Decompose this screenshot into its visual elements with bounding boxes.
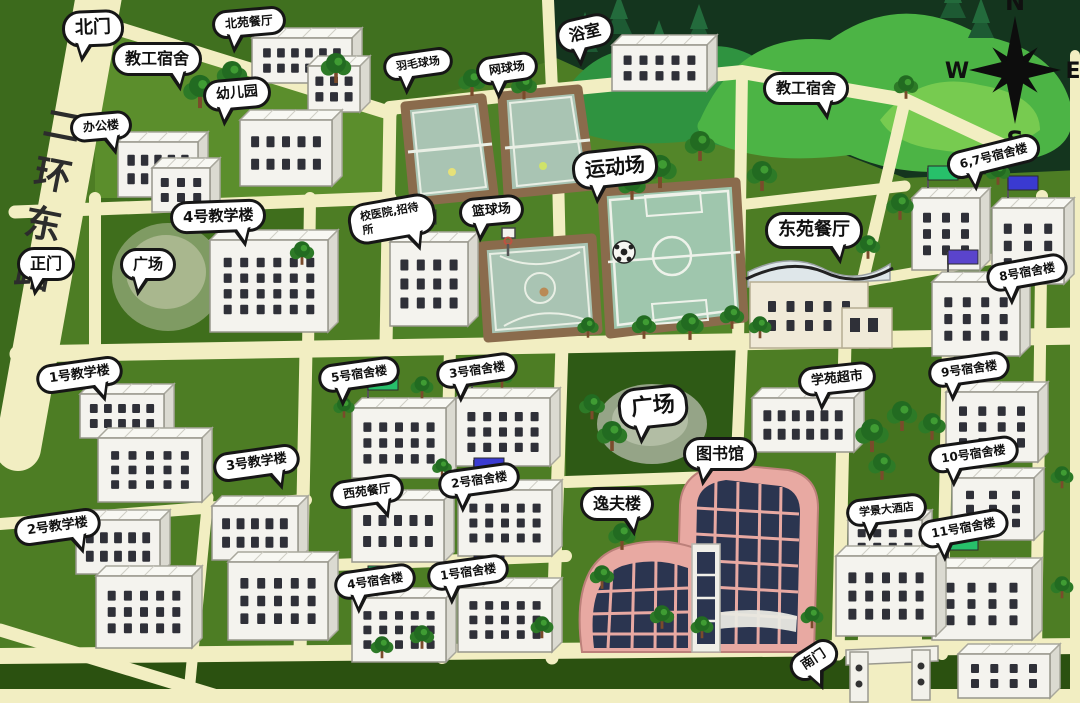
label-text: 办公楼 [82, 117, 119, 134]
label-text: 浴室 [567, 20, 602, 46]
building-teaching-building-1b [98, 428, 212, 502]
roof-flag-icon [948, 250, 978, 264]
label-dongyuan-dining: 东苑餐厅 [765, 212, 863, 249]
label-text: 3号宿舍楼 [448, 359, 506, 381]
label-text: 10号宿舍楼 [940, 443, 1006, 466]
label-text: 4号教学楼 [183, 206, 254, 226]
label-yifu-building: 逸夫楼 [580, 487, 654, 521]
label-text: 北门 [75, 16, 112, 38]
label-text: 西苑餐厅 [342, 481, 391, 502]
label-text: 校医院,招待所 [359, 200, 420, 237]
label-text: 8号宿舍楼 [998, 260, 1056, 284]
label-text: 广场 [630, 392, 676, 421]
label-text: 南门 [799, 646, 829, 673]
label-faculty-dorm-ne: 教工宿舍 [763, 72, 849, 105]
label-main-gate: 正门 [17, 247, 75, 281]
label-kindergarten: 幼儿园 [202, 75, 272, 112]
label-text: 逸夫楼 [593, 494, 641, 513]
building-supermarket [752, 388, 864, 452]
label-text: 运动场 [584, 152, 646, 182]
compass-east-label: E [1065, 59, 1080, 84]
label-text: 2号教学楼 [26, 515, 89, 538]
building-teaching-building-3b [228, 552, 338, 640]
compass-west-label: W [945, 59, 969, 84]
label-text: 9号宿舍楼 [940, 358, 998, 380]
label-text: 学苑超市 [810, 368, 863, 388]
building-kindergarten [240, 110, 342, 186]
building-yifu [580, 541, 720, 652]
label-text: 3号教学楼 [225, 451, 288, 474]
building-bathhouse [612, 35, 717, 91]
label-text: 幼儿园 [215, 83, 258, 103]
label-text: 11号宿舍楼 [930, 515, 996, 540]
map-artwork: N E S W [0, 0, 1080, 703]
label-text: 东苑餐厅 [778, 219, 850, 240]
soccer-ball-icon [613, 241, 635, 263]
label-library: 图书馆 [683, 437, 757, 471]
building-teaching-building-4 [210, 230, 338, 332]
label-text: 1号宿舍楼 [439, 561, 497, 583]
label-text: 教工宿舍 [125, 49, 189, 68]
label-text: 正门 [30, 254, 62, 273]
label-text: 网球场 [488, 59, 526, 78]
label-faculty-dorm-nw: 教工宿舍 [112, 42, 202, 76]
label-text: 4号宿舍楼 [346, 570, 404, 592]
label-teaching-4: 4号教学楼 [169, 198, 267, 234]
label-square-west: 广场 [120, 248, 176, 281]
building-teaching-building-2b [96, 566, 202, 648]
label-text: 教工宿舍 [776, 79, 836, 97]
building-corner-building [958, 644, 1060, 698]
label-text: 篮球场 [471, 201, 511, 219]
label-north-gate: 北门 [61, 9, 124, 48]
compass-north-label: N [1005, 0, 1025, 16]
label-text: 学景大酒店 [858, 500, 914, 519]
label-text: 羽毛球场 [395, 54, 440, 73]
label-text: 图书馆 [696, 444, 744, 463]
soccer-field [602, 182, 744, 334]
building-hotel-main [836, 546, 946, 636]
label-text: 2号宿舍楼 [450, 469, 508, 491]
badminton-court [405, 98, 494, 202]
label-text: 北苑餐厅 [224, 13, 273, 31]
basketball-court [482, 228, 598, 338]
label-text: 5号宿舍楼 [330, 363, 388, 385]
label-text: 1号教学楼 [48, 363, 111, 386]
building-teaching-building-3a [212, 496, 308, 560]
campus-map: N E S W 二环东路 北门教工宿舍北苑餐厅幼儿园办公楼4号教学楼正门广场羽毛… [0, 0, 1080, 703]
roof-flag-icon [1008, 176, 1038, 190]
label-text: 广场 [133, 255, 163, 273]
label-square-center: 广场 [616, 382, 690, 431]
